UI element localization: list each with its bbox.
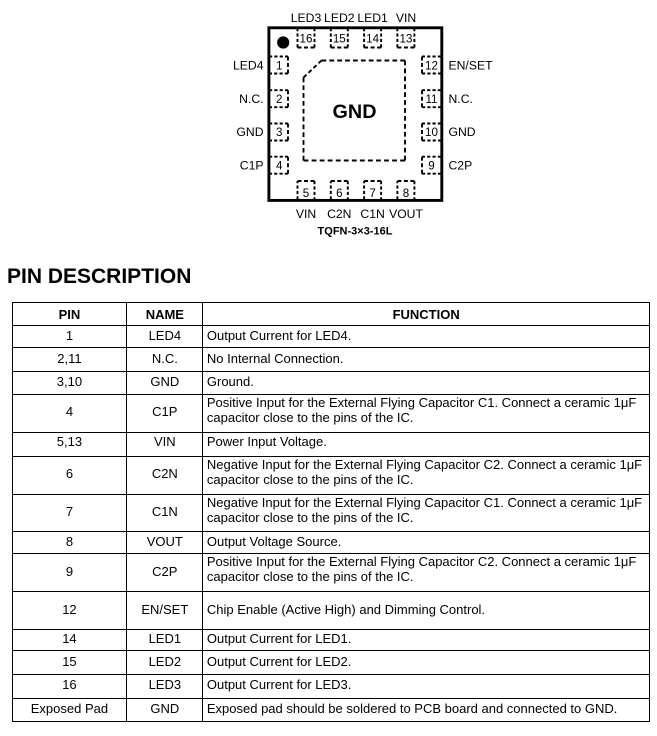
svg-text:LED4: LED4 bbox=[233, 58, 264, 72]
svg-text:2: 2 bbox=[276, 93, 282, 106]
svg-text:VIN: VIN bbox=[296, 207, 316, 221]
svg-text:N.C.: N.C. bbox=[449, 92, 473, 106]
svg-text:12: 12 bbox=[425, 59, 438, 72]
svg-text:GND: GND bbox=[449, 125, 476, 139]
svg-text:C2N: C2N bbox=[327, 207, 351, 221]
svg-text:C1N: C1N bbox=[360, 207, 384, 221]
svg-text:N.C.: N.C. bbox=[239, 92, 263, 106]
svg-text:VIN: VIN bbox=[396, 11, 416, 25]
svg-text:TQFN-3×3-16L: TQFN-3×3-16L bbox=[318, 226, 393, 238]
svg-text:11: 11 bbox=[425, 93, 437, 106]
svg-text:3: 3 bbox=[276, 126, 282, 139]
svg-text:LED3: LED3 bbox=[291, 11, 322, 25]
svg-text:VOUT: VOUT bbox=[389, 207, 423, 221]
svg-text:6: 6 bbox=[336, 187, 342, 200]
svg-text:LED1: LED1 bbox=[357, 11, 388, 25]
svg-text:10: 10 bbox=[425, 126, 438, 139]
svg-text:9: 9 bbox=[428, 159, 434, 172]
svg-text:C2P: C2P bbox=[449, 158, 473, 172]
svg-text:1: 1 bbox=[276, 59, 282, 72]
svg-text:EN/SET: EN/SET bbox=[449, 58, 494, 72]
svg-text:15: 15 bbox=[333, 32, 346, 45]
svg-text:13: 13 bbox=[400, 32, 413, 45]
svg-text:14: 14 bbox=[366, 32, 379, 45]
svg-text:16: 16 bbox=[300, 32, 313, 45]
svg-text:GND: GND bbox=[333, 101, 377, 123]
svg-text:LED2: LED2 bbox=[324, 11, 355, 25]
svg-text:7: 7 bbox=[369, 187, 375, 200]
svg-text:8: 8 bbox=[403, 187, 409, 200]
svg-text:4: 4 bbox=[276, 159, 283, 172]
svg-text:GND: GND bbox=[236, 125, 263, 139]
svg-text:5: 5 bbox=[303, 187, 309, 200]
svg-text:C1P: C1P bbox=[240, 158, 264, 172]
